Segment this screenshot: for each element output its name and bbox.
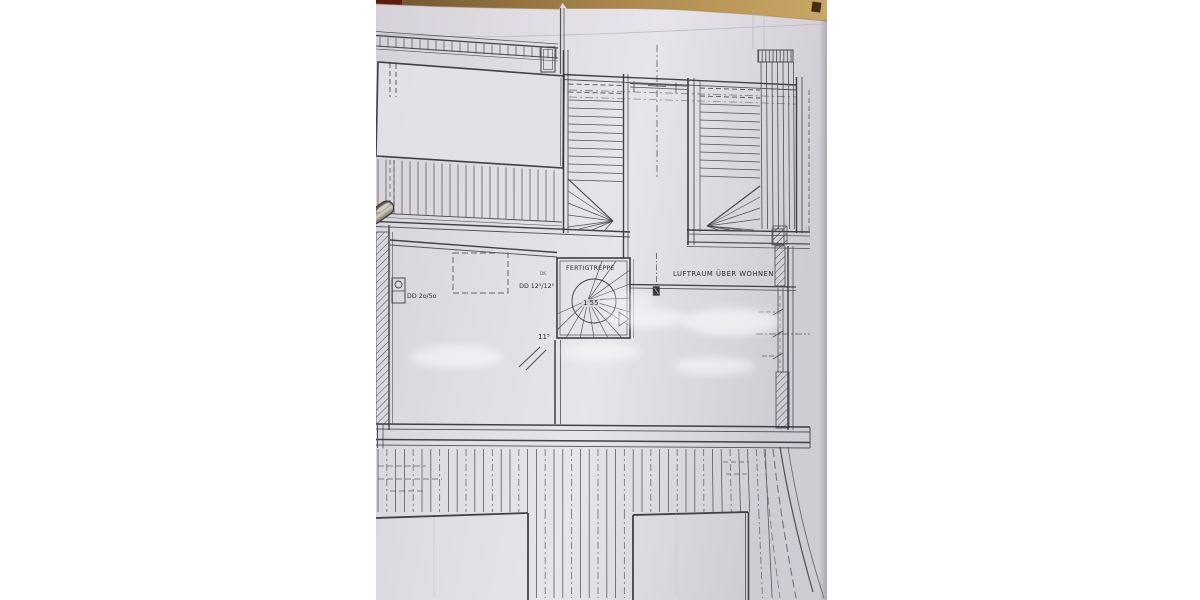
floorplan-photo: FERTIGTREPPE 1 55 LUFTRAUM ÜBER WOHNEN D… — [376, 0, 827, 600]
paper-edge-shadow — [819, 20, 827, 600]
label-duct-middle: DD 12⁵/12⁵ — [510, 283, 554, 290]
label-duct-left: DD 2o/5o — [407, 293, 437, 300]
label-duct-middle-mark: DK — [540, 271, 546, 276]
label-stair-name: FERTIGTREPPE — [566, 264, 615, 272]
label-wall-dimension: 11⁵ — [538, 333, 550, 341]
floorplan-drawing — [376, 0, 827, 600]
label-air-space: LUFTRAUM ÜBER WOHNEN — [673, 270, 774, 278]
screenshot-root: FERTIGTREPPE 1 55 LUFTRAUM ÜBER WOHNEN D… — [0, 0, 1200, 600]
label-stair-dimension: 1 55 — [582, 299, 600, 307]
